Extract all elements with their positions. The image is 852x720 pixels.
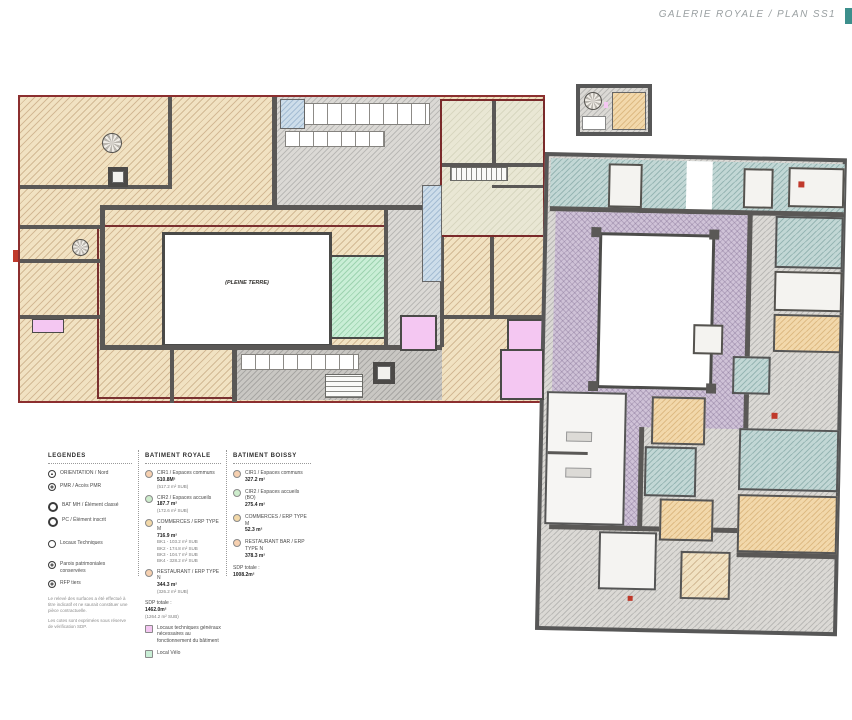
room-orange bbox=[773, 314, 842, 353]
bike-room bbox=[330, 255, 388, 339]
room-white bbox=[598, 531, 657, 590]
corridor-slot bbox=[686, 161, 713, 212]
room-white bbox=[608, 163, 643, 208]
spiral-stair-icon bbox=[584, 92, 602, 110]
courtyard-label: (PLEINE TERRE) bbox=[225, 280, 269, 286]
elevator bbox=[108, 167, 128, 187]
plan-sheet: GALERIE ROYALE / PLAN SS1 (PLEINE TERRE) bbox=[0, 0, 852, 720]
safety-mark bbox=[771, 413, 777, 419]
furniture bbox=[565, 467, 591, 478]
suite-white bbox=[544, 391, 627, 526]
plan-fragment bbox=[576, 84, 652, 136]
survey-mark bbox=[13, 250, 18, 262]
technical-room-pink bbox=[32, 319, 64, 333]
elevator bbox=[373, 362, 395, 384]
spiral-stair-icon bbox=[102, 133, 122, 153]
staircase bbox=[325, 374, 363, 398]
spiral-stair-icon bbox=[72, 239, 89, 256]
technical-room-pink bbox=[400, 315, 437, 351]
blue-room bbox=[422, 185, 442, 282]
room-white bbox=[788, 167, 845, 208]
locker-row bbox=[285, 103, 430, 125]
room-teal bbox=[738, 428, 839, 492]
room-white bbox=[774, 271, 843, 312]
locker-row bbox=[285, 131, 385, 147]
sheet-title: GALERIE ROYALE / PLAN SS1 bbox=[659, 9, 836, 20]
plan-batiment-boissy bbox=[535, 152, 847, 636]
room-orange bbox=[612, 92, 646, 130]
room-orange bbox=[737, 494, 838, 554]
swatch bbox=[233, 489, 241, 497]
room-beige bbox=[680, 551, 731, 600]
staircase bbox=[450, 167, 508, 181]
legend-column-general: LEGENDES ▲ ORIENTATION / Nord PMR / Accè… bbox=[48, 452, 132, 630]
mh-circle-icon bbox=[48, 502, 58, 512]
blue-room bbox=[280, 99, 305, 129]
legend-title: LEGENDES bbox=[48, 452, 132, 464]
swatch bbox=[145, 470, 153, 478]
service-zone bbox=[237, 350, 442, 400]
circle-icon bbox=[48, 540, 56, 548]
legend-title: BATIMENT BOISSY bbox=[233, 452, 311, 464]
swatch bbox=[233, 539, 241, 547]
courtyard bbox=[596, 232, 715, 390]
room-teal bbox=[644, 446, 697, 497]
swatch bbox=[145, 495, 153, 503]
room-white bbox=[582, 116, 606, 130]
courtyard: (PLEINE TERRE) bbox=[162, 232, 332, 347]
room-orange bbox=[651, 396, 706, 445]
swatch bbox=[233, 514, 241, 522]
stair-room bbox=[693, 324, 724, 355]
sdp-total: SDP totale : bbox=[145, 600, 172, 606]
sdp-total: SDP totale : bbox=[233, 565, 260, 571]
locker-row bbox=[241, 354, 359, 370]
swatch bbox=[145, 569, 153, 577]
annex-section bbox=[440, 99, 545, 237]
swatch bbox=[233, 470, 241, 478]
furniture bbox=[566, 432, 592, 443]
safety-mark bbox=[798, 181, 804, 187]
pmr-icon bbox=[48, 483, 56, 491]
swatch bbox=[145, 650, 153, 658]
legend-separator bbox=[226, 450, 227, 576]
legend-column-royale: BATIMENT ROYALE CIR1 / Espaces communs 5… bbox=[145, 452, 221, 663]
legend-title: BATIMENT ROYALE bbox=[145, 452, 221, 464]
pc-circle-icon bbox=[48, 517, 58, 527]
technical-dot bbox=[604, 102, 608, 108]
edge-marker bbox=[845, 8, 852, 24]
swatch bbox=[145, 519, 153, 527]
legend-column-boissy: BATIMENT BOISSY CIR1 / Espaces communs 3… bbox=[233, 452, 311, 584]
legend-footnote: Les cotes sont exprimées sous réserve de… bbox=[48, 618, 130, 630]
north-arrow-icon: ▲ bbox=[48, 470, 56, 478]
room-orange bbox=[659, 498, 714, 541]
room-teal bbox=[732, 356, 771, 395]
legend-footnote: Le relevé des surfaces a été effectué à … bbox=[48, 596, 130, 614]
technical-room-pink bbox=[500, 349, 544, 400]
target-icon bbox=[48, 580, 56, 588]
legend-separator bbox=[138, 450, 139, 576]
plan-batiment-royale: (PLEINE TERRE) bbox=[18, 95, 545, 403]
swatch bbox=[145, 625, 153, 633]
room-teal bbox=[775, 216, 844, 269]
target-icon bbox=[48, 561, 56, 569]
safety-mark bbox=[628, 596, 633, 601]
room-white bbox=[743, 168, 774, 209]
